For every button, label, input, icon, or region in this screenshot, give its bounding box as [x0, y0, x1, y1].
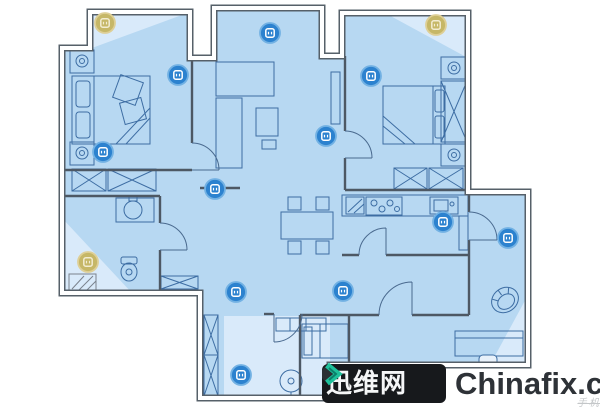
smart-device-marker-icon[interactable] — [361, 66, 381, 86]
smart-device-marker-icon[interactable] — [333, 281, 353, 301]
smart-device-marker-icon[interactable] — [316, 126, 336, 146]
smart-device-marker-icon[interactable] — [226, 282, 246, 302]
smart-device-marker-icon[interactable] — [93, 142, 113, 162]
watermark-logo-box: 迅维网 — [322, 364, 446, 403]
watermark: 迅维网 Chinafix.com 手机维修技改 — [322, 361, 600, 405]
screenshot-stage: 迅维网 Chinafix.com 手机维修技改 — [0, 0, 600, 407]
smart-device-marker-icon[interactable] — [168, 65, 188, 85]
smart-device-marker-icon[interactable] — [231, 365, 251, 385]
chevron-logo-icon — [322, 361, 348, 387]
smart-device-marker-icon[interactable] — [433, 212, 453, 232]
smart-device-marker-yellow-icon[interactable] — [426, 15, 446, 35]
floor-plan — [0, 0, 600, 407]
watermark-tagline: 手机维修技改 — [576, 394, 600, 407]
smart-device-marker-icon[interactable] — [498, 228, 518, 248]
smart-device-marker-yellow-icon[interactable] — [78, 252, 98, 272]
smart-device-marker-icon[interactable] — [205, 179, 225, 199]
smart-device-marker-icon[interactable] — [260, 23, 280, 43]
smart-device-marker-yellow-icon[interactable] — [95, 13, 115, 33]
